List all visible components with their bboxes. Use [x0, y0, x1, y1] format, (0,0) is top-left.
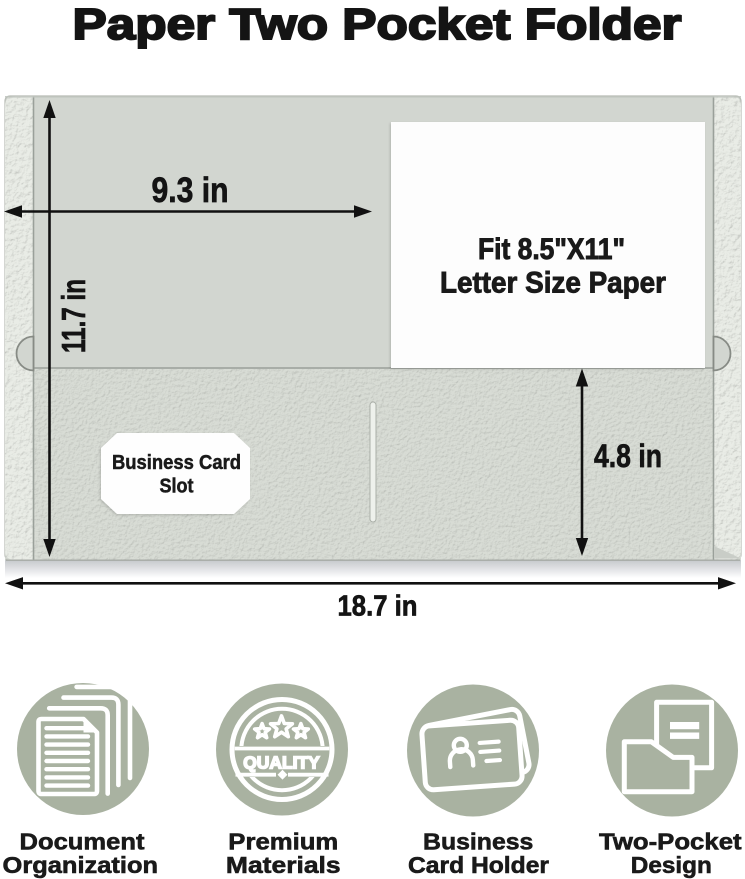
- svg-text:Slot: Slot: [160, 476, 194, 498]
- svg-text:9.3 in: 9.3 in: [152, 170, 229, 210]
- svg-text:QUALITY: QUALITY: [243, 753, 320, 773]
- svg-text:Business: Business: [423, 829, 533, 855]
- svg-text:Card Holder: Card Holder: [408, 852, 549, 878]
- svg-text:Materials: Materials: [226, 852, 341, 878]
- svg-text:11.7 in: 11.7 in: [56, 279, 93, 353]
- svg-text:Paper Two Pocket Folder: Paper Two Pocket Folder: [73, 0, 682, 49]
- svg-text:Two-Pocket: Two-Pocket: [599, 829, 742, 855]
- svg-text:Letter Size Paper: Letter Size Paper: [440, 266, 666, 299]
- svg-text:Organization: Organization: [3, 852, 159, 878]
- svg-text:4.8 in: 4.8 in: [594, 437, 662, 474]
- svg-text:Premium: Premium: [228, 829, 338, 855]
- svg-text:Fit 8.5"X11": Fit 8.5"X11": [478, 233, 625, 266]
- svg-text:Document: Document: [20, 829, 145, 855]
- svg-text:Business Card: Business Card: [112, 452, 241, 474]
- svg-text:Design: Design: [631, 852, 712, 878]
- svg-text:18.7 in: 18.7 in: [338, 590, 418, 622]
